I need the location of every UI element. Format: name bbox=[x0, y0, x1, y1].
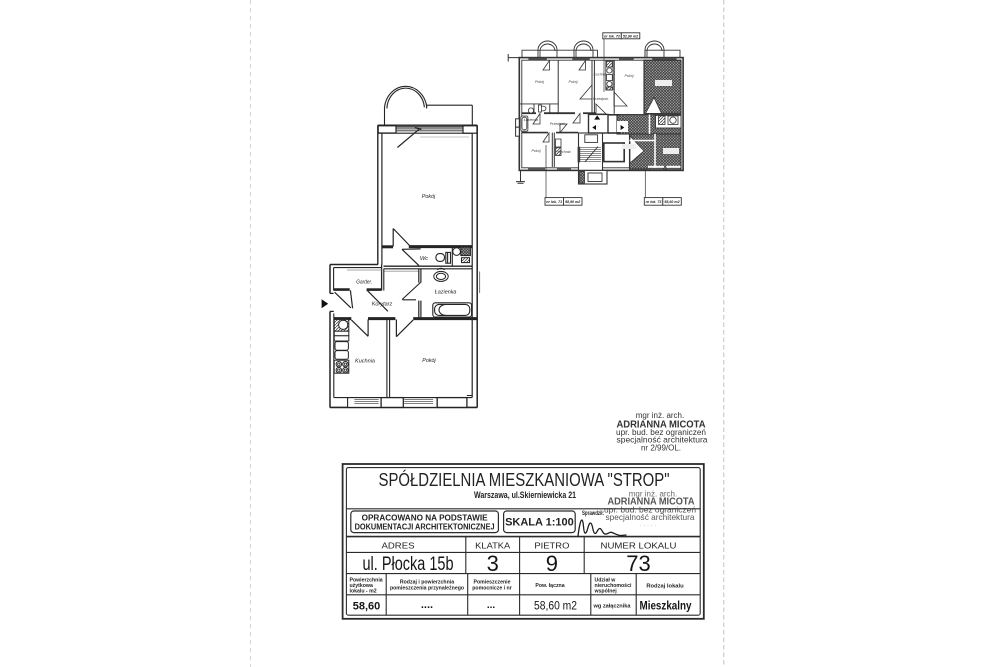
svg-text:Pokój: Pokój bbox=[532, 149, 541, 153]
svg-text:DOKUMENTACJI ARCHITEKTONICZNEJ: DOKUMENTACJI ARCHITEKTONICZNEJ bbox=[355, 523, 495, 532]
svg-text:lokalu - m2: lokalu - m2 bbox=[350, 589, 377, 595]
svg-text:58,90 m2: 58,90 m2 bbox=[565, 200, 580, 204]
svg-text:wg załącznika: wg załącznika bbox=[593, 604, 632, 610]
svg-text:pomocnicze i nr: pomocnicze i nr bbox=[472, 586, 512, 592]
svg-text:PIETRO: PIETRO bbox=[534, 540, 569, 550]
svg-text:Kuchnia: Kuchnia bbox=[558, 150, 571, 154]
svg-text:Przedpok.: Przedpok. bbox=[593, 97, 609, 101]
svg-text:NUMER LOKALU: NUMER LOKALU bbox=[601, 540, 677, 550]
svg-text:73: 73 bbox=[626, 551, 650, 576]
svg-text:52,90 m2: 52,90 m2 bbox=[623, 34, 638, 38]
svg-text:Łazienka: Łazienka bbox=[524, 118, 538, 122]
svg-text:wspólnej: wspólnej bbox=[594, 589, 618, 595]
svg-text:KLATKA: KLATKA bbox=[475, 540, 510, 550]
svg-text:SKALA 1:100: SKALA 1:100 bbox=[505, 516, 574, 528]
svg-text:3: 3 bbox=[487, 551, 499, 576]
svg-text:Pokój: Pokój bbox=[422, 194, 436, 200]
svg-text:specjalność architektura: specjalność architektura bbox=[606, 512, 695, 522]
svg-text:58,60: 58,60 bbox=[353, 601, 381, 613]
svg-text:ul. Płocka 15b: ul. Płocka 15b bbox=[363, 554, 454, 575]
svg-text:58,60 m2: 58,60 m2 bbox=[534, 601, 577, 613]
svg-text:nr 2/99/OL.: nr 2/99/OL. bbox=[641, 443, 681, 452]
svg-text:pomieszczenia przynależnego: pomieszczenia przynależnego bbox=[390, 586, 464, 592]
svg-text:nr lok. 71: nr lok. 71 bbox=[546, 200, 562, 204]
svg-text:58,60 m2: 58,60 m2 bbox=[664, 200, 679, 204]
svg-text:Łazienka: Łazienka bbox=[435, 289, 457, 295]
svg-text:Mieszkalny: Mieszkalny bbox=[640, 599, 692, 613]
svg-text:9: 9 bbox=[546, 551, 558, 576]
svg-text:...: ... bbox=[487, 600, 496, 611]
svg-text:Pokój: Pokój bbox=[535, 80, 544, 84]
svg-text:Sprawdził:: Sprawdził: bbox=[582, 510, 604, 517]
svg-text:· · · · ·: · · · · · bbox=[640, 524, 657, 530]
svg-text:SPÓŁDZIELNIA MIESZKANIOWA "STR: SPÓŁDZIELNIA MIESZKANIOWA "STROP" bbox=[379, 469, 670, 490]
svg-text:Garder.: Garder. bbox=[356, 279, 372, 285]
svg-text:nr lok. 73: nr lok. 73 bbox=[646, 200, 662, 204]
svg-text:Pow. łączna: Pow. łączna bbox=[535, 583, 564, 589]
svg-text:Warszawa, ul.Skierniewicka 21: Warszawa, ul.Skierniewicka 21 bbox=[474, 490, 576, 500]
svg-text:ADRES: ADRES bbox=[382, 540, 415, 550]
svg-text:Pokój: Pokój bbox=[625, 74, 634, 78]
svg-text:....: .... bbox=[421, 599, 433, 611]
svg-text:Pokój: Pokój bbox=[422, 358, 436, 364]
svg-text:Korytarz: Korytarz bbox=[372, 301, 393, 307]
svg-text:Rodzaj lokalu: Rodzaj lokalu bbox=[646, 584, 684, 590]
svg-text:Przedpok.: Przedpok. bbox=[550, 122, 566, 126]
svg-text:nr lok. 72: nr lok. 72 bbox=[604, 34, 620, 38]
svg-text:Pokój: Pokój bbox=[569, 80, 578, 84]
svg-text:OPRACOWANO NA PODSTAWIE: OPRACOWANO NA PODSTAWIE bbox=[362, 513, 489, 522]
svg-text:Kuchnia: Kuchnia bbox=[355, 359, 376, 365]
svg-text:Kuchnia: Kuchnia bbox=[594, 73, 607, 77]
svg-text:Wc: Wc bbox=[420, 256, 428, 262]
